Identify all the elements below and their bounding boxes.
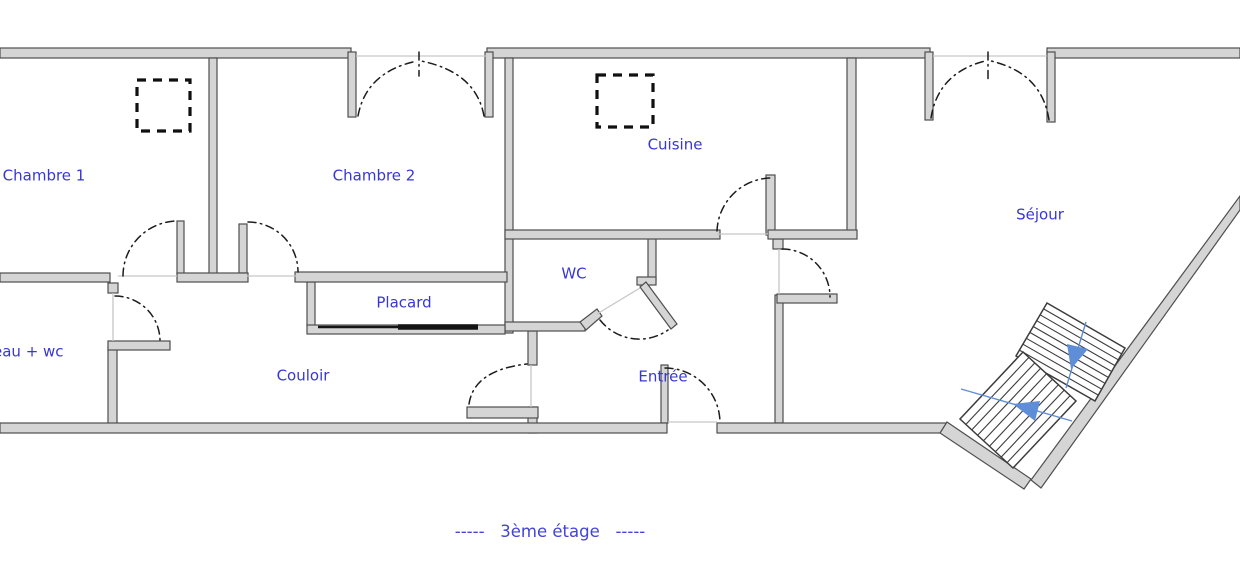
room-label-chambre-2: Chambre 2 <box>333 169 416 184</box>
floor-caption: ----- 3ème étage ----- <box>455 524 645 541</box>
room-label-chambre-1: Chambre 1 <box>3 169 86 184</box>
floor-plan-svg <box>0 0 1240 582</box>
room-label-sejour: Séjour <box>1016 208 1064 223</box>
room-label-cuisine: Cuisine <box>648 138 703 153</box>
duct-square-chambre1 <box>137 80 190 131</box>
floor-plan: Chambre 1Chambre 2CuisineSéjourWCPlacard… <box>0 0 1240 582</box>
room-label-salle-eau-wc: eau + wc <box>0 345 64 360</box>
room-label-couloir: Couloir <box>277 369 330 384</box>
room-label-wc: WC <box>561 267 586 282</box>
room-label-entree: Entrée <box>638 370 687 385</box>
duct-square-cuisine <box>597 75 653 127</box>
room-label-placard: Placard <box>376 296 431 311</box>
staircase <box>960 303 1125 468</box>
